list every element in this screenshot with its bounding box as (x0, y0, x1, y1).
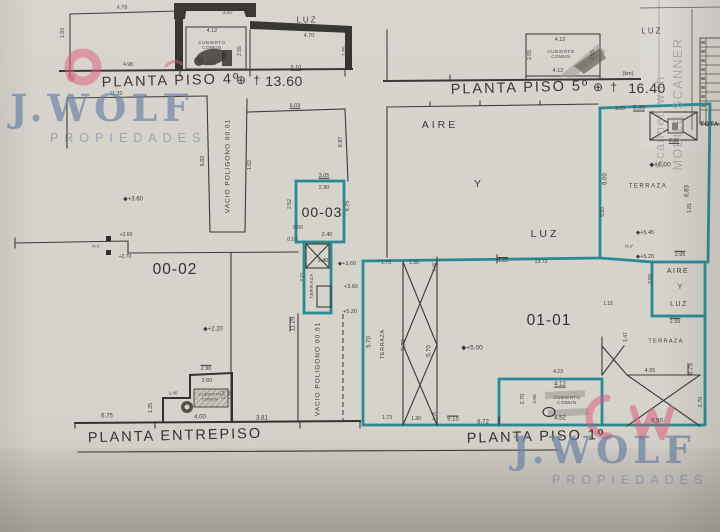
text-label: CUBIERTO COMUN (544, 49, 578, 59)
dim-label: 0.50 (293, 226, 303, 232)
dim-label: 2.54 (220, 391, 225, 400)
text-label: N.V (92, 243, 100, 248)
dim-label: ◆+6.00 (649, 161, 670, 168)
dim-label: 1.93 (61, 28, 67, 38)
unit-label-00-02: 00-02 (153, 261, 198, 279)
dim-label: 2.40 (322, 232, 333, 238)
text-label: LUZ (670, 301, 688, 309)
dim-label: 6.83 (685, 185, 692, 197)
dim-label: ◆+3.60 (123, 197, 143, 204)
dim-label: 13.72 (535, 260, 548, 266)
text-label: TERRAZA (381, 329, 387, 359)
dim-label: +3.60 (120, 233, 133, 239)
scanner-watermark-line2: MOBILE SCANNER (671, 38, 685, 171)
dim-label: 4.12 (206, 61, 217, 67)
dim-label: 6.82 (200, 156, 206, 167)
text-label: CUBIERTO COMUN (546, 395, 588, 405)
dim-label: 2.55 (528, 50, 534, 60)
dim-label: 1.81 (688, 203, 694, 213)
dim-label: 4.12 (553, 68, 564, 74)
dim-label: 3.40 (318, 258, 329, 264)
dim-label: 1.73 (381, 261, 391, 267)
dim-label: 4.52 (554, 416, 566, 423)
text-label: LUZ (641, 26, 662, 35)
dim-label: 2.95 (675, 252, 686, 258)
dim-label: ◆+5.20 (636, 254, 654, 260)
dim-label: 1.45 (169, 390, 178, 395)
dim-label: 1.85 (343, 46, 349, 56)
dim-label: 5.93 (601, 207, 607, 217)
text-label: CUBIERTO COMUN (195, 40, 229, 50)
dim-label: 11.29 (291, 317, 298, 332)
courtyard-label-aire: AIRE (422, 119, 459, 131)
dim-label: 5.70 (367, 336, 374, 348)
dim-label: 1.60 (227, 391, 232, 400)
dim-label: 2.55 (670, 319, 681, 325)
dim-label: 2.55 (533, 394, 539, 403)
dim-label: 2.52 (288, 199, 294, 209)
level-value-piso5: 16.40 (628, 80, 666, 96)
dim-label: +2.70 (119, 255, 132, 261)
text-label: Y (678, 284, 683, 292)
dim-label: 3.81 (256, 416, 268, 423)
dim-label: 3.05 (319, 173, 330, 179)
dim-label: 5.70 (427, 345, 434, 357)
dim-label: 4.78 (116, 5, 127, 12)
dim-label: 2.55 (179, 46, 185, 56)
dim-label: 4.12 (207, 28, 218, 34)
dim-label: 2.55 (591, 50, 597, 60)
dim-label: 1.30 (411, 417, 421, 423)
dim-label: 2.60 (202, 378, 213, 384)
dim-label: 4.23 (553, 370, 563, 376)
dim-label: 11.32 (109, 91, 122, 97)
dim-label: 5.70 (402, 339, 409, 351)
text-label: AIRE (667, 268, 689, 276)
dim-label: ◆+5.45 (636, 230, 654, 236)
dim-label: 4.98 (123, 63, 133, 69)
dim-label: 3.87 (223, 10, 234, 17)
plan-piso5-walls (384, 30, 640, 81)
text-label: TERRAZA (629, 184, 668, 191)
dim-label: 3.30 (669, 138, 680, 144)
dim-label: 0.10 (287, 238, 297, 244)
unit-0003-walls (296, 181, 344, 313)
dim-label: ◆+2.20 (203, 327, 223, 334)
text-label: VACIO POLIGONO 00.01 (314, 322, 321, 416)
dim-label: ◆+5.00 (461, 344, 482, 351)
dim-label: 6.00 (603, 173, 610, 185)
unit-label-01-01: 01-01 (527, 312, 572, 330)
dim-label: 4.12 (554, 382, 566, 389)
text-label: VACIO POLIGONO 00.01 (224, 119, 231, 213)
benchmark-marker-icon: ⊕ † (593, 80, 619, 94)
dim-label: 1.62 (248, 160, 254, 170)
dim-label: 6.10 (291, 65, 302, 71)
text-label: TERRAZA (648, 339, 683, 346)
dim-label: 3.59 (649, 274, 655, 284)
dim-label: 6.50 (651, 419, 663, 426)
dim-label: 2.70 (698, 397, 704, 408)
dim-label: 1.30 (409, 261, 419, 267)
dim-label: 6.75 (101, 414, 113, 421)
dim-label: 2.55 (238, 46, 244, 56)
text-label: TERRAZA (310, 273, 316, 299)
dim-label: 0.95 (431, 263, 436, 272)
level-value-piso4: 13.60 (265, 73, 303, 89)
dim-label: 1.15 (603, 302, 613, 308)
dim-label: 6.87 (338, 137, 344, 148)
courtyard-outline (387, 104, 598, 257)
dim-label: +5.20 (343, 309, 357, 315)
benchmark-marker-icon: ⊕ † (236, 73, 262, 87)
dim-label: 6.03 (290, 103, 301, 109)
dim-label: +3.60 (344, 284, 358, 290)
plan-entrepiso-walls (15, 96, 558, 452)
dim-label: 1.35 (149, 403, 155, 413)
dim-label: 4.12 (555, 37, 566, 43)
text-label: N.V (625, 243, 633, 248)
table-total-label: TOTA (700, 121, 719, 128)
dim-label: 2.90 (201, 366, 212, 372)
dim-label: ◆+3.60 (338, 261, 356, 267)
dim-label: 4.70 (304, 33, 315, 39)
dim-label: 1.47 (624, 332, 630, 342)
dim-label: 4.00 (194, 415, 206, 422)
courtyard-label-luz: LUZ (531, 228, 560, 240)
dim-label: 6.75 (345, 201, 351, 212)
courtyard-label-y: Y (474, 178, 484, 190)
text-label: LUZ (296, 15, 317, 24)
dim-label: 9.15 (447, 417, 459, 424)
dim-label: 0.95 (431, 412, 436, 421)
dim-label: 4.55 (645, 368, 656, 374)
dim-label: 2.90 (319, 185, 330, 191)
dim-label: 1.73 (382, 416, 392, 422)
dim-label: 3.29 (615, 107, 625, 113)
scanned-floorplan-page: J.WOLF PROPIEDADES J.WOLF PROPIEDADES Sc… (0, 0, 720, 532)
dim-label: 1.22 (498, 259, 508, 265)
dim-label: 6.75 (689, 363, 696, 375)
text-label: (km) (623, 71, 634, 77)
dim-label: 5.35 (633, 106, 645, 113)
dim-label: 2.70 (520, 394, 526, 405)
dim-label: 2.21 (300, 272, 306, 281)
dim-label: 8.72 (477, 420, 489, 427)
unit-label-00-03: 00-03 (302, 204, 343, 220)
